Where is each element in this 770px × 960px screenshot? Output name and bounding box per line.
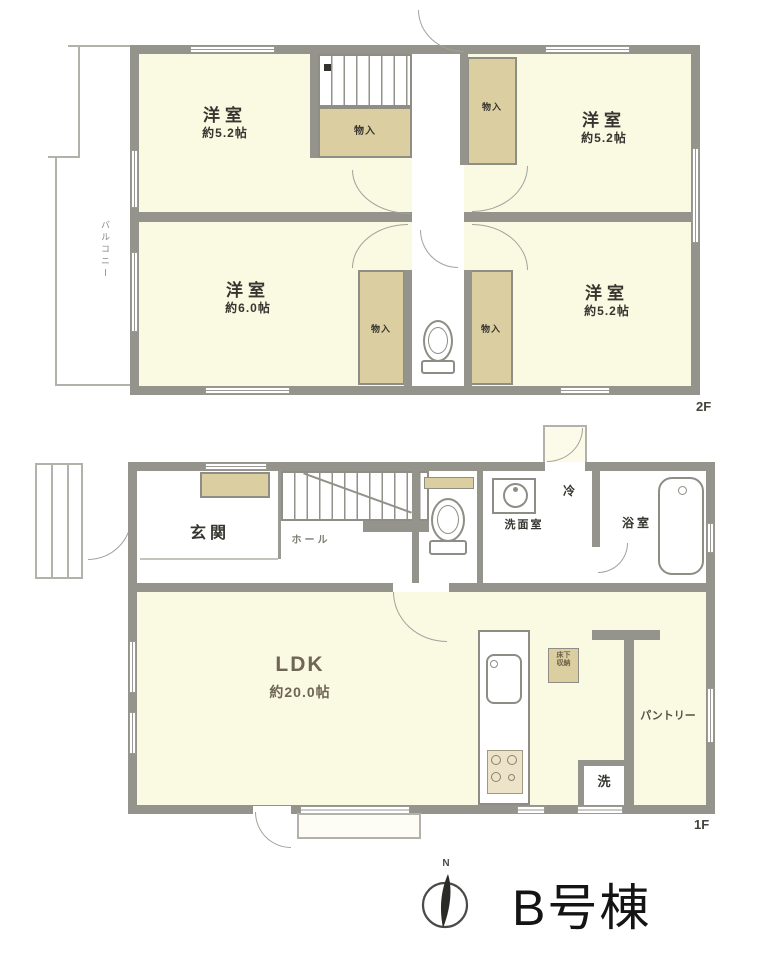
floor1-tag: 1F — [694, 817, 709, 832]
toilet-icon — [437, 505, 459, 534]
window — [577, 806, 623, 814]
porch-step — [51, 465, 53, 577]
closet-label: 物入 — [351, 324, 411, 335]
building-title: B号棟 — [512, 868, 651, 940]
laundry-label: 洗 — [592, 774, 616, 790]
door-gap — [545, 462, 585, 471]
washroom-label: 洗面室 — [484, 519, 564, 533]
balcony-outline — [55, 156, 57, 386]
window — [131, 252, 138, 332]
compass-north-label: N — [438, 858, 454, 871]
window — [131, 150, 138, 208]
burner-icon — [507, 755, 517, 765]
floor2-stairs — [318, 54, 412, 107]
shoe-closet — [200, 472, 270, 498]
room-size: 約5.2帖 — [155, 126, 295, 141]
window — [205, 387, 290, 394]
balcony-outline — [48, 156, 80, 158]
balcony-label: バルコニー — [92, 195, 110, 305]
wall — [592, 630, 660, 640]
closet-label: 物入 — [335, 126, 395, 139]
room-name: 洋室 — [534, 110, 674, 131]
wall — [130, 212, 412, 222]
sink-icon — [513, 487, 518, 492]
window — [707, 523, 714, 553]
bathtub-faucet-icon — [678, 486, 687, 495]
floor-storage-line2: 収納 — [548, 660, 579, 668]
ldk-size-label: 約20.0帖 — [240, 684, 360, 702]
porch — [35, 463, 83, 579]
floor2-tag: 2F — [696, 399, 711, 414]
window — [707, 688, 714, 743]
door-arc — [255, 812, 291, 848]
floor1-stairs — [281, 471, 429, 521]
pantry-label: パントリー — [632, 710, 704, 724]
window — [517, 806, 545, 814]
room-name: 洋室 — [155, 105, 295, 126]
terrace-step — [297, 813, 421, 839]
window — [190, 46, 275, 53]
room-size: 約5.2帖 — [534, 131, 674, 146]
room-name: 洋室 — [537, 283, 677, 304]
refrigerator-label: 冷 — [558, 484, 580, 499]
burner-icon — [491, 772, 501, 782]
window — [129, 641, 136, 693]
window — [129, 712, 136, 754]
bathroom-label: 浴室 — [606, 516, 668, 531]
window — [692, 148, 699, 243]
toilet-icon — [421, 360, 455, 374]
closet-label: 物入 — [461, 324, 521, 335]
toilet-shelf — [424, 477, 474, 489]
backdoor-alcove — [543, 425, 545, 462]
wall — [412, 471, 419, 583]
wall — [363, 521, 429, 532]
wall — [310, 54, 318, 158]
ldk-label: LDK — [240, 652, 360, 678]
door-gap — [393, 583, 449, 592]
wall — [128, 805, 715, 814]
room-label-2f-bottom-left: 洋室 約6.0帖 — [178, 280, 318, 316]
floor-storage-label: 床下 収納 — [548, 652, 579, 668]
room-label-2f-top-left: 洋室 約5.2帖 — [155, 105, 295, 141]
window — [205, 463, 267, 470]
floor-storage-line1: 床下 — [548, 652, 579, 660]
entrance-label: 玄関 — [172, 524, 248, 544]
entrance-door-arc — [88, 516, 132, 560]
toilet-icon — [428, 327, 448, 354]
room-name: 洋室 — [178, 280, 318, 301]
backdoor-alcove — [585, 425, 587, 462]
floorplan-page: バルコニー 洋室 約5.2帖 洋室 約5.2帖 洋室 約6.0帖 — [0, 0, 770, 960]
burner-icon — [491, 755, 501, 765]
wall — [592, 462, 600, 547]
wall — [706, 462, 715, 814]
room-size: 約5.2帖 — [537, 304, 677, 319]
window — [545, 46, 630, 53]
window — [560, 387, 610, 394]
room-label-2f-top-right: 洋室 約5.2帖 — [534, 110, 674, 146]
wall — [128, 462, 137, 814]
balcony-outline — [78, 45, 80, 158]
room-size: 約6.0帖 — [178, 301, 318, 316]
compass-icon — [412, 868, 478, 934]
balcony-outline — [55, 384, 130, 386]
toilet-icon — [429, 540, 467, 555]
burner-icon — [508, 774, 515, 781]
genkan-step-line — [140, 558, 278, 560]
hall-label: ホール — [273, 535, 349, 548]
closet-label: 物入 — [467, 102, 517, 113]
stairs-marker — [324, 64, 331, 71]
backdoor-alcove — [543, 425, 587, 427]
wall — [464, 212, 700, 222]
wall — [477, 471, 483, 583]
room-label-2f-bottom-right: 洋室 約5.2帖 — [537, 283, 677, 319]
porch-step — [67, 465, 69, 577]
kitchen-faucet-icon — [490, 660, 498, 668]
